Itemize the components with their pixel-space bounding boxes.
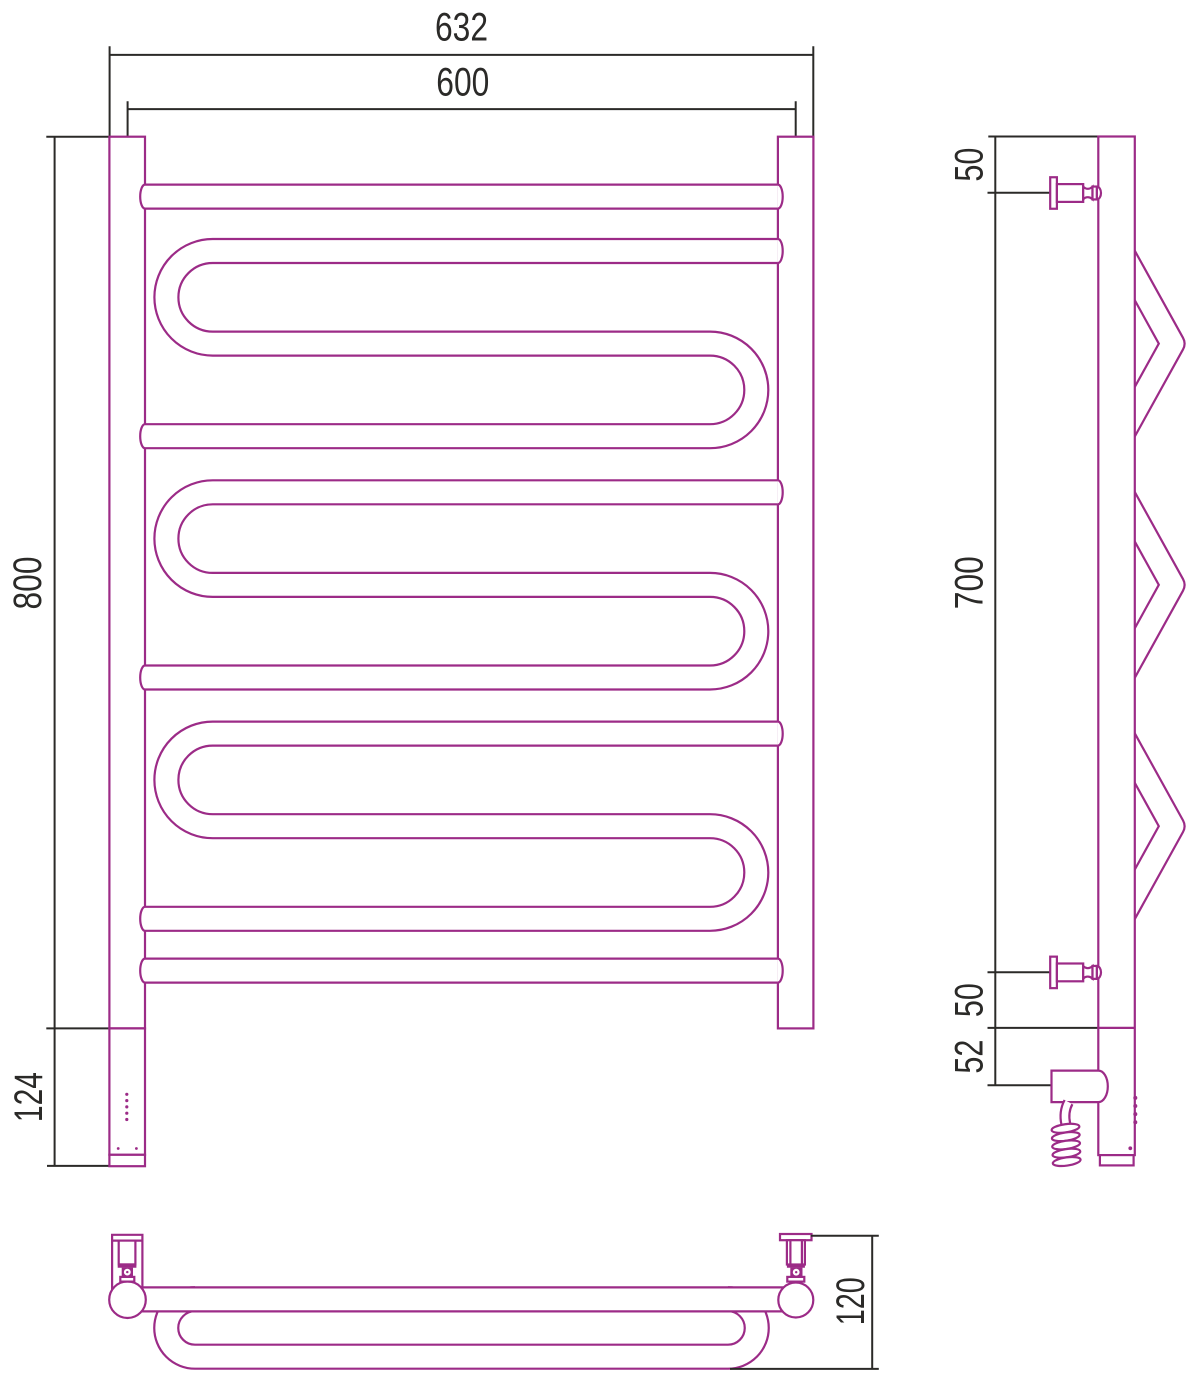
svg-text:800: 800: [6, 557, 50, 610]
svg-text:600: 600: [436, 60, 489, 104]
svg-text:120: 120: [829, 1277, 873, 1325]
svg-text:50: 50: [948, 983, 992, 1017]
svg-text:52: 52: [948, 1040, 992, 1074]
svg-text:50: 50: [948, 148, 992, 182]
svg-text:700: 700: [948, 556, 992, 609]
svg-text:124: 124: [7, 1072, 51, 1122]
svg-text:632: 632: [435, 6, 488, 50]
